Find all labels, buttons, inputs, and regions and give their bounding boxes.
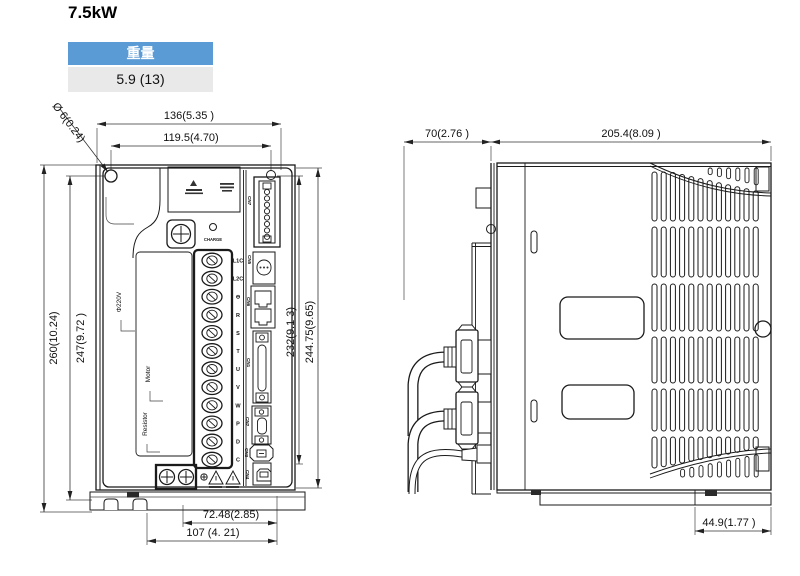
base-tab [127,492,139,498]
terminal-slot [209,438,216,444]
vent-slot [680,175,685,221]
resistor-group-label: Resistor [142,411,149,436]
vent-slot [753,227,758,277]
terminal-label: W [235,403,241,409]
connector-label: CN1 [246,358,251,368]
vent-slot [707,337,712,383]
dimension-drawing: 136(5.35 ) 119.5(4.70) Ø 6(0.24) 260(10.… [0,0,800,576]
charge-label: CHARGE [204,237,222,242]
cn7-pin [264,221,269,226]
vent-slot-bottom [745,457,749,477]
vent-slot [726,227,731,277]
terminal-slot [209,275,216,281]
cn3-connector [250,445,273,461]
side-view: 70(2.76 ) 205.4(8.09 ) [404,128,771,535]
base-tab [705,490,717,496]
ground-symbol-icon [201,474,207,480]
vent-slot [670,389,675,431]
terminal-rows: L1CL2C⊖RSTUVWPDC [202,253,243,467]
terminal-slot [209,456,216,462]
vent-slot-bottom [736,458,740,477]
vent-slot-top [708,168,712,175]
connector-label: CN7 [247,196,252,206]
vent-slot [726,389,731,431]
cn7-pin [264,234,269,239]
vent-slot [735,187,740,221]
terminal-label: ⊖ [236,295,241,301]
charge-led-icon [210,224,217,231]
vent-slot [735,337,740,383]
dsub-plug [444,387,491,449]
cn1-connector [253,331,271,403]
vent-slot-bottom [699,466,703,477]
cn7-connector [254,177,280,247]
motor-group-label: Motor [145,365,152,382]
power-group-label: Φ220V [116,291,123,312]
vent-slot [680,389,685,431]
vent-slot [716,389,721,431]
terminal-slot [209,402,216,408]
terminal-label: V [236,385,240,391]
vent-slot [670,284,675,331]
vent-slot [689,284,694,331]
connector-label: CN2 [245,417,250,427]
vent-slot-bottom [708,464,712,477]
vent-slot [689,437,694,461]
vent-slot [707,181,712,221]
vent-slot [689,227,694,277]
vent-slot [670,227,675,277]
cn2-connector [252,406,271,444]
side-base [497,490,771,505]
cn7-pin [264,209,269,214]
dim-hole-pitch-height: 247(9.72 ) [66,176,105,500]
dim-text: 44.9(1.77 ) [702,517,755,529]
vent-slot [744,337,749,383]
mount-hole [267,171,276,180]
vent-slot [661,227,666,277]
dim-text: 119.5(4.70) [163,132,218,144]
vent-slot [744,437,749,451]
dim-right-height-inner: 232(9.1 3) [277,176,303,464]
terminal-label: C [236,458,240,464]
connector-label: CN3 [244,448,249,458]
terminal-label: P [236,421,240,427]
terminal-label: T [236,349,240,355]
dim-text: 107 (4. 21) [186,527,239,539]
vent-slot [698,389,703,431]
vent-slot [735,284,740,331]
vent-slot [716,284,721,331]
vent-slot [744,227,749,277]
vent-slot [698,437,703,460]
dim-text: 72.48(2.85) [203,509,259,521]
dim-right-height-outer: 244.75(9.65) [296,168,322,488]
vent-slot [744,284,749,331]
vent-slot-bottom [690,467,694,477]
terminal-slot [209,257,216,263]
dim-text: 136(5.35 ) [164,110,214,122]
vent-slot [670,173,675,221]
dim-text: Ø 6(0.24) [50,101,88,145]
front-screw [167,220,195,248]
vent-slot [680,437,685,463]
terminal-slot [209,294,216,300]
dim-mount-hole: Ø 6(0.24) [50,101,108,172]
vent-slot [707,437,712,458]
vent-slot-top [727,168,731,179]
warning-triangle-icon [209,471,223,488]
vent-slot-bottom [727,460,731,477]
vent-slot [661,389,666,431]
dim-text: 244.75(9.65) [304,301,316,363]
connector-label: CN6 [246,297,251,307]
vent-slot [652,227,657,277]
vent-slot [661,172,666,221]
cn6-connector [251,286,275,328]
warning-triangle-icon [226,471,240,488]
vent-slot [698,227,703,277]
side-hole [755,321,771,337]
terminal-slot [209,330,216,336]
vent-slot [716,227,721,277]
vent-slot [670,437,675,465]
vent-slot [698,337,703,383]
terminal-slot [209,384,216,390]
terminal-label: D [236,440,240,446]
vent-slot [689,389,694,431]
vent-slot [689,337,694,383]
vent-slot [744,189,749,221]
vent-slot-top [736,168,740,181]
vent-slot [726,185,731,221]
vent-slot [716,183,721,221]
drawing-page: 7.5kW 重量 5.9 (13) 136(5.35 ) 119.5(4.7 [0,0,800,576]
base-tab [531,490,541,495]
vent-slot [726,437,731,454]
vent-slot [716,437,721,456]
vent-slot-bottom [717,462,721,477]
terminal-slot [209,366,216,372]
side-cutout [562,385,634,419]
vent-slot [680,337,685,383]
vent-slot [735,389,740,431]
terminal-label: L2C [233,277,243,283]
vent-slot [670,337,675,383]
dim-base-depth: 44.9(1.77 ) [695,507,771,535]
terminal-slot [209,420,216,426]
terminal-label: R [236,313,240,319]
cn4-connector [253,463,271,485]
vent-slot [753,389,758,431]
dim-front-depth: 70(2.76 ) [404,128,491,300]
vent-slot [652,389,657,431]
delta-logo-icon [190,180,197,186]
cn7-pin [264,215,269,220]
vent-slot [652,337,657,383]
front-view: 136(5.35 ) 119.5(4.70) Ø 6(0.24) 260(10.… [40,101,322,545]
connector-label: CN4 [245,470,250,480]
vent-slot-bottom [681,469,685,477]
dim-overall-height: 260(10.24) [40,165,96,512]
vent-slot [680,227,685,277]
vent-slot [735,227,740,277]
side-cutout [560,297,644,339]
terminal-slot [209,348,216,354]
dim-text: 247(9.72 ) [75,313,87,363]
cn7-pin [264,189,269,194]
dsub-plug [444,325,491,387]
dim-body-depth: 205.4(8.09 ) [491,128,771,161]
vent-slot [707,227,712,277]
vent-slot-top [745,168,749,183]
vent-slot [661,284,666,331]
vent-slot [707,389,712,431]
vent-slot-top [717,168,721,177]
nameplate [168,167,240,212]
vent-slot [707,284,712,331]
connector-label: CN5 [247,255,252,265]
vent-slot [652,284,657,331]
cn5-connector [253,252,275,284]
vent-slot [652,172,657,221]
wiring-group-panel: Φ220V Motor Resistor [116,252,192,456]
dim-text: 205.4(8.09 ) [601,128,660,140]
vent-slot [716,337,721,383]
cn7-pin [264,196,269,201]
vent-slot [652,437,657,468]
vent-slot [735,437,740,452]
vent-grille [650,163,771,478]
terminal-label: S [236,331,240,337]
charge-indicator: CHARGE [204,224,222,243]
vent-slot [680,284,685,331]
cn7-pin [264,202,269,207]
mount-hole [105,170,117,182]
cn7-pin [264,228,269,233]
terminal-slot [209,312,216,318]
side-body [491,163,771,490]
vent-slot [726,284,731,331]
vent-slot [661,437,666,467]
vent-slot [726,337,731,383]
vent-slot [744,389,749,431]
dim-text: 70(2.76 ) [425,128,469,140]
vent-slot [753,337,758,383]
vent-slot [661,337,666,383]
front-base [90,492,305,510]
ground-terminal-box [156,465,196,489]
connector-labels: CN7CN5CN6CN1CN2CN3CN4 [244,196,252,480]
dim-text: 260(10.24) [48,311,60,364]
terminal-label: U [236,367,240,373]
vent-slot [698,284,703,331]
terminal-label: L1C [233,259,243,265]
